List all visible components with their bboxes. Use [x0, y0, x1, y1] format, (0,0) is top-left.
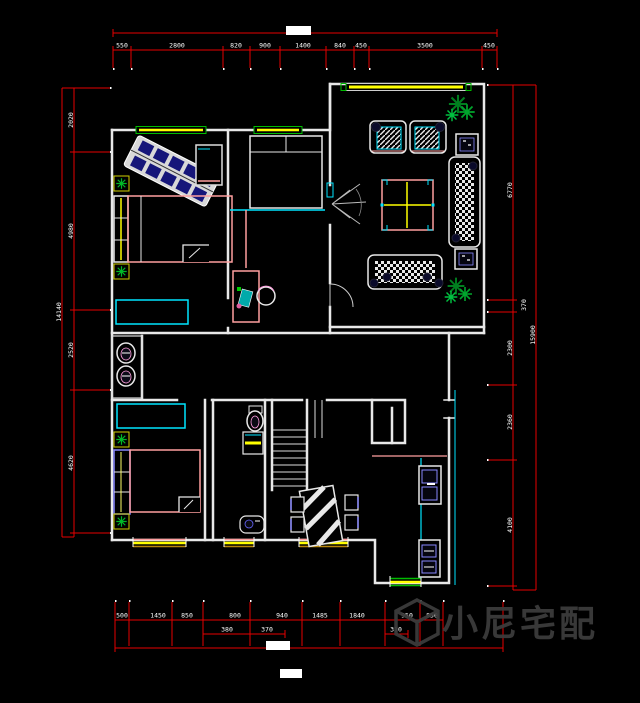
dimension-labels-bottom: 500 1450 850 800 940 1485 1840 950 850 3… [116, 612, 438, 634]
plant-icon [114, 176, 129, 191]
washing-machine-icon [243, 432, 263, 454]
dimension-lines [62, 29, 536, 652]
sofa-icon [449, 157, 480, 247]
dimension-labels-right: 6770 370 2300 2360 4100 15900 [506, 182, 537, 533]
dim-label: 4620 [67, 455, 75, 471]
dim-label: 2520 [67, 342, 75, 358]
dim-label: 940 [276, 612, 288, 620]
nightstand-icon [196, 145, 222, 185]
basin-icon [117, 366, 135, 386]
dim-label: 370 [261, 626, 273, 634]
dim-label-overall: 14140 [55, 302, 63, 322]
squat-toilet-icon [240, 516, 264, 533]
toilet-icon [247, 406, 263, 431]
bedroom2-furniture [230, 136, 353, 322]
dining-chair-icon [345, 495, 358, 510]
plant-icon [114, 514, 129, 529]
wardrobe-icon [117, 404, 185, 428]
dim-label: 2360 [506, 414, 514, 430]
living-room-furniture [327, 95, 480, 303]
dining-table-icon [299, 485, 342, 546]
dim-label-overall: 15900 [529, 325, 537, 345]
dim-label: 2800 [169, 42, 185, 50]
window-bedroom2 [254, 127, 302, 134]
bedroom1-furniture [114, 135, 232, 324]
stove-icon [419, 540, 440, 577]
highlighted-dimension-box-top [286, 26, 311, 35]
armchair-icon [370, 121, 406, 153]
plant-icon [445, 278, 472, 304]
dim-label: 500 [116, 612, 128, 620]
dim-label: 380 [221, 626, 233, 634]
dim-label: 1450 [150, 612, 166, 620]
coffee-table-icon [381, 180, 435, 230]
dim-label: 2300 [506, 340, 514, 356]
dim-label: 900 [259, 42, 271, 50]
balcony-door-fan-icon [327, 183, 366, 224]
dim-label: 3500 [417, 42, 433, 50]
plant-icon [114, 264, 129, 279]
watermark: 小尼宅配 [396, 600, 598, 645]
bed-icon [114, 450, 200, 514]
dim-label: 2020 [67, 112, 75, 128]
double-bed-icon [114, 196, 232, 262]
dim-label: 1485 [312, 612, 328, 620]
armchair-icon [410, 121, 446, 153]
dim-label: 450 [483, 42, 495, 50]
cad-floorplan-canvas: 550 2800 820 900 1400 840 450 3500 450 2… [0, 0, 640, 703]
dimension-labels-top: 550 2800 820 900 1400 840 450 3500 450 [116, 42, 495, 50]
dim-label: 4980 [67, 223, 75, 239]
plant-icon [446, 95, 475, 121]
dining-chair-icon [345, 515, 358, 530]
watermark-brand-text: 小尼宅配 [442, 603, 598, 645]
washbasin-counter [112, 336, 142, 398]
dim-label: 1840 [349, 612, 365, 620]
desk-icon [233, 271, 259, 322]
window-kitchen [390, 576, 421, 587]
dim-label: 820 [230, 42, 242, 50]
bathroom-fixtures [240, 406, 264, 533]
bed-icon [250, 136, 322, 208]
sofa-icon [368, 255, 443, 289]
dim-label: 4100 [506, 517, 514, 533]
dresser-icon [116, 300, 188, 324]
window-bedroom1 [136, 127, 206, 134]
sink-icon [419, 466, 441, 504]
dimension-labels-left: 2020 4980 2520 4620 14140 [55, 112, 75, 471]
dim-label: 800 [229, 612, 241, 620]
side-table-icon [455, 249, 477, 269]
side-table-icon [456, 134, 478, 155]
kitchen-fixtures [372, 456, 447, 578]
window-living [341, 84, 471, 91]
dim-label: 550 [116, 42, 128, 50]
dim-label: 1400 [295, 42, 311, 50]
dim-label: 450 [355, 42, 367, 50]
door-swing-icon [330, 284, 353, 307]
dim-label: 840 [334, 42, 346, 50]
stairs-icon [273, 400, 322, 486]
bedroom3-furniture [114, 404, 200, 529]
watermark-logo-cube-icon [396, 600, 438, 645]
dim-label: 850 [181, 612, 193, 620]
dining-chair-icon [291, 497, 304, 512]
plant-icon [114, 432, 129, 447]
dining-chair-icon [291, 517, 304, 532]
highlighted-dimension-box-bottom-2 [280, 669, 302, 678]
floorplan-drawing: 550 2800 820 900 1400 840 450 3500 450 2… [0, 0, 640, 703]
dim-label: 370 [520, 299, 528, 311]
highlighted-dimension-box-bottom [266, 641, 290, 650]
basin-icon [117, 343, 135, 363]
dim-label: 6770 [506, 182, 514, 198]
